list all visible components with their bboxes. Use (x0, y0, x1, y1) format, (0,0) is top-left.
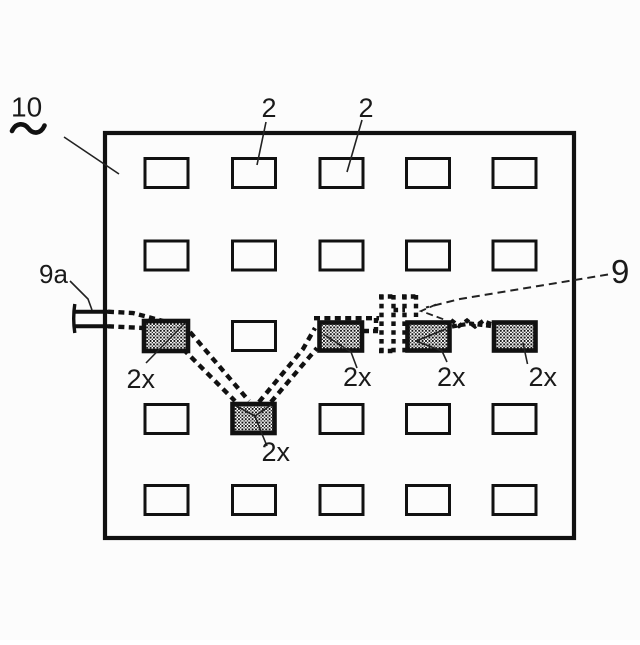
svg-text:2: 2 (359, 93, 374, 123)
svg-text:9a: 9a (39, 259, 68, 289)
svg-text:2: 2 (262, 93, 277, 123)
svg-text:2x: 2x (529, 362, 558, 392)
svg-text:2x: 2x (437, 362, 466, 392)
svg-text:2x: 2x (127, 364, 156, 394)
svg-text:9: 9 (611, 253, 629, 290)
svg-text:2x: 2x (262, 437, 291, 467)
svg-text:2x: 2x (343, 362, 372, 392)
svg-text:10: 10 (11, 92, 42, 123)
